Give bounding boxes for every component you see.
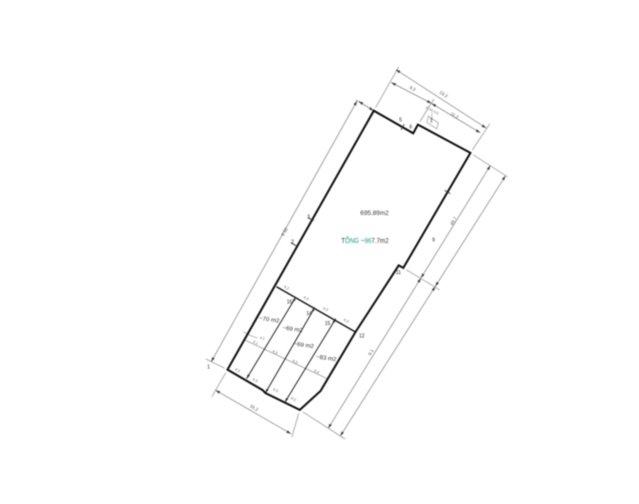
svg-text:16: 16 [287, 300, 293, 306]
svg-text:695.89m2: 695.89m2 [360, 210, 389, 217]
svg-text:9: 9 [432, 238, 435, 244]
svg-text:5: 5 [399, 118, 402, 124]
svg-text:TỔNG ~967.7m2: TỔNG ~967.7m2 [341, 236, 389, 245]
svg-text:11: 11 [396, 270, 401, 276]
svg-text:6: 6 [409, 125, 412, 131]
svg-text:1: 1 [207, 365, 210, 371]
svg-text:3: 3 [307, 215, 310, 221]
svg-text:2: 2 [291, 240, 294, 246]
svg-text:15: 15 [325, 321, 331, 327]
svg-text:7: 7 [430, 119, 433, 125]
svg-text:4.2: 4.2 [259, 336, 265, 341]
svg-text:12: 12 [359, 334, 365, 340]
svg-text:14: 14 [306, 311, 312, 317]
